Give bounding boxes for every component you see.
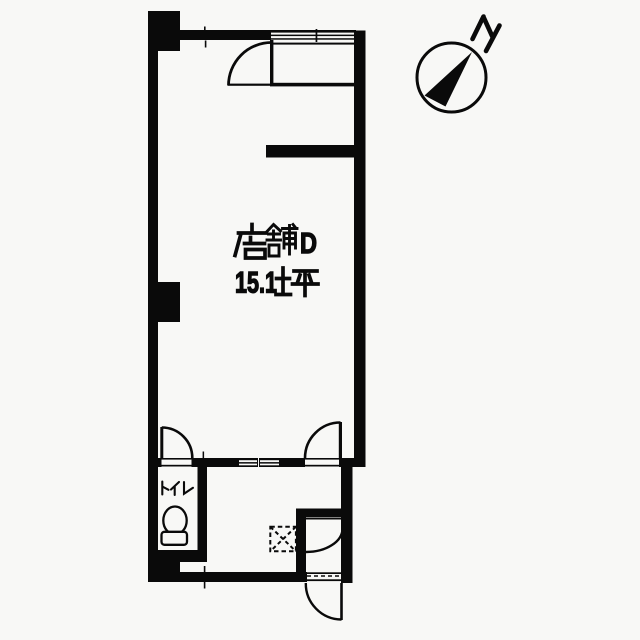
svg-text:D: D bbox=[300, 228, 317, 260]
svg-text:15.1: 15.1 bbox=[235, 267, 277, 300]
